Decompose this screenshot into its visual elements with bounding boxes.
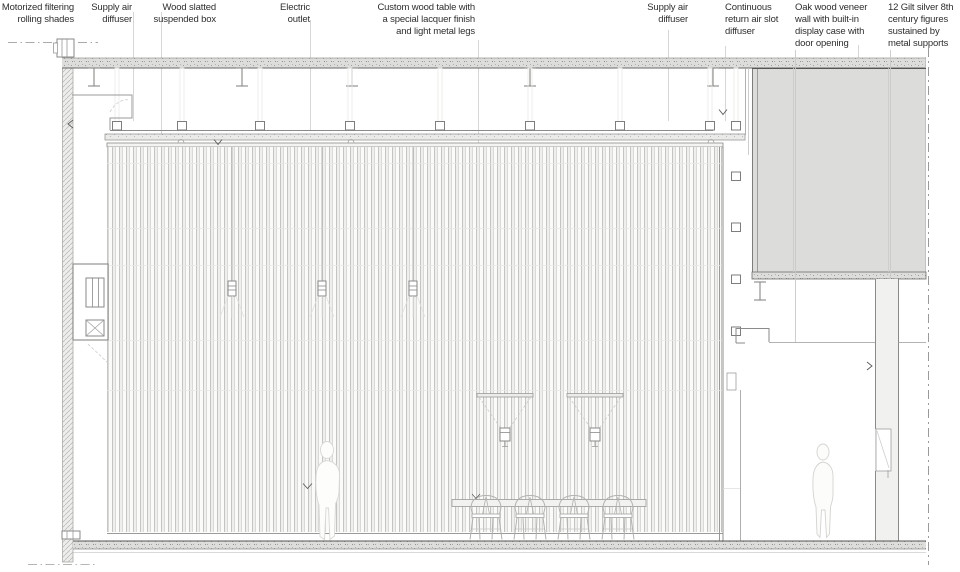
ceiling-hanger-rods bbox=[115, 68, 738, 122]
label-supply-air-diffuser-left: Supply air diffuser bbox=[91, 2, 132, 26]
floor-slab-icon bbox=[73, 541, 926, 553]
rolling-shade-unit-icon bbox=[73, 264, 108, 363]
label-gilt-figures: 12 Gilt silver 8th century figures susta… bbox=[888, 2, 953, 50]
label-motorized-shades: Motorized filtering rolling shades bbox=[2, 2, 74, 26]
label-electric-outlet: Electric outlet bbox=[280, 2, 310, 26]
steel-beam-icon bbox=[88, 68, 719, 86]
shade-roller-housing-icon bbox=[54, 39, 75, 57]
label-wood-slatted-box: Wood slatted suspended box bbox=[154, 2, 217, 26]
air-diffuser-square-icon bbox=[113, 122, 715, 131]
wood-slat-wall-icon bbox=[105, 134, 745, 541]
display-wall-niche-icon bbox=[769, 279, 926, 541]
display-wall-volume bbox=[746, 57, 927, 300]
architectural-section-page: Motorized filtering rolling shades Suppl… bbox=[0, 0, 960, 572]
concrete-slab-icon bbox=[62, 58, 926, 68]
label-supply-air-diffuser-right: Supply air diffuser bbox=[647, 2, 688, 26]
floor-track-icon bbox=[62, 531, 80, 539]
label-custom-wood-table: Custom wood table with a special lacquer… bbox=[377, 2, 475, 38]
label-return-air-diffuser: Continuous return air slot diffuser bbox=[725, 2, 778, 38]
section-drawing bbox=[0, 0, 960, 572]
label-oak-veneer-wall: Oak wood veneer wall with built-in displ… bbox=[795, 2, 867, 50]
